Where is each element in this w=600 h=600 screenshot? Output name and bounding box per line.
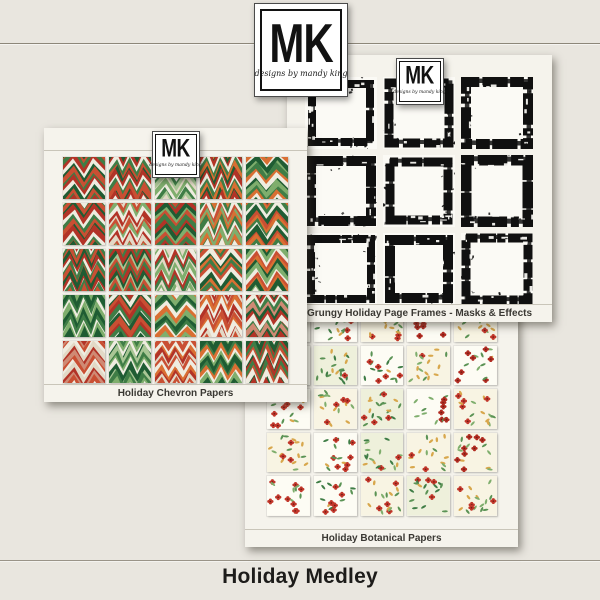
grunge-frame <box>305 233 377 305</box>
footer-divider-line <box>0 560 600 561</box>
chevron-paper-swatch <box>63 203 105 245</box>
botanical-paper-swatch <box>454 476 497 516</box>
botanical-paper-swatch <box>267 476 310 516</box>
grunge-frame <box>383 155 455 227</box>
chevron-paper-swatch <box>246 295 288 337</box>
sheet-label-frames: Grungy Holiday Page Frames - Masks & Eff… <box>287 304 552 322</box>
holiday-medley-preview: Holiday Botanical Papers MK designs by m… <box>0 0 600 600</box>
chevron-paper-swatch <box>63 249 105 291</box>
mk-tagline: designs by mandy king <box>393 90 445 95</box>
chevron-paper-swatch <box>246 203 288 245</box>
botanical-paper-swatch <box>361 389 404 429</box>
botanical-paper-swatch <box>361 476 404 516</box>
botanical-paper-swatch <box>454 346 497 386</box>
botanical-paper-swatch <box>407 389 450 429</box>
page-title: Holiday Medley <box>0 565 600 589</box>
mk-monogram: MK <box>161 139 190 162</box>
mk-monogram: MK <box>405 66 434 89</box>
botanical-paper-swatch <box>314 476 357 516</box>
mk-logo-small-frames: MK designs by mandy king <box>396 58 444 105</box>
chevron-paper-swatch <box>200 203 242 245</box>
chevron-paper-swatch <box>155 341 197 383</box>
botanical-paper-swatch <box>314 346 357 386</box>
sheet-label-botanical: Holiday Botanical Papers <box>245 529 518 547</box>
grunge-frame <box>383 233 455 305</box>
mk-logo-border: MK designs by mandy king <box>260 9 342 91</box>
chevron-paper-swatch <box>246 157 288 199</box>
grunge-frame <box>461 77 533 149</box>
botanical-paper-swatch <box>454 389 497 429</box>
botanical-paper-swatch <box>361 346 404 386</box>
botanical-paper-swatch <box>407 433 450 473</box>
mk-logo-border: MK designs by mandy king <box>155 134 197 175</box>
mk-tagline: designs by mandy king <box>149 163 201 168</box>
chevron-paper-swatch <box>109 295 151 337</box>
chevron-swatch-grid <box>63 157 288 383</box>
chevron-paper-swatch <box>200 295 242 337</box>
chevron-paper-swatch <box>155 295 197 337</box>
chevron-paper-swatch <box>63 295 105 337</box>
botanical-paper-swatch <box>361 433 404 473</box>
mk-logo-border: MK designs by mandy king <box>399 61 441 102</box>
chevron-paper-swatch <box>155 203 197 245</box>
chevron-paper-swatch <box>63 157 105 199</box>
chevron-paper-swatch <box>109 249 151 291</box>
botanical-paper-swatch <box>407 476 450 516</box>
sheet-label-text: Holiday Chevron Papers <box>118 388 234 399</box>
chevron-paper-swatch <box>246 249 288 291</box>
chevron-paper-swatch <box>246 341 288 383</box>
grunge-frame <box>305 155 377 227</box>
sheet-label-text: Holiday Botanical Papers <box>321 533 441 544</box>
chevron-paper-swatch <box>200 157 242 199</box>
sheet-label-text: Grungy Holiday Page Frames - Masks & Eff… <box>307 308 532 319</box>
chevron-paper-swatch <box>63 341 105 383</box>
mk-logo-main: MK designs by mandy king <box>254 3 348 97</box>
grunge-frame <box>461 155 533 227</box>
mk-monogram: MK <box>269 18 332 70</box>
chevron-paper-swatch <box>109 203 151 245</box>
chevron-paper-swatch <box>200 341 242 383</box>
botanical-paper-swatch <box>314 389 357 429</box>
sheet-holiday-chevron-papers: MK designs by mandy king Holiday Chevron… <box>44 128 307 402</box>
frame-grid <box>305 77 533 305</box>
sheet-label-chevron: Holiday Chevron Papers <box>44 384 307 402</box>
chevron-paper-swatch <box>155 249 197 291</box>
chevron-paper-swatch <box>109 341 151 383</box>
chevron-paper-swatch <box>200 249 242 291</box>
botanical-paper-swatch <box>454 433 497 473</box>
mk-logo-small-chevron: MK designs by mandy king <box>152 131 200 178</box>
botanical-paper-swatch <box>267 433 310 473</box>
grunge-frame <box>461 233 533 305</box>
botanical-paper-swatch <box>407 346 450 386</box>
chevron-paper-swatch <box>109 157 151 199</box>
botanical-paper-swatch <box>314 433 357 473</box>
